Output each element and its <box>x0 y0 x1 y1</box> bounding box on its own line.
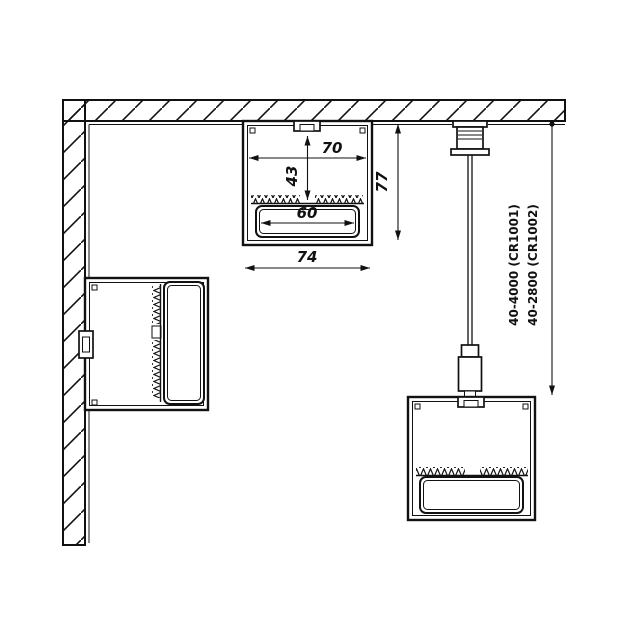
dim-label-overall-width: 74 <box>297 248 318 266</box>
ceiling-hatch <box>63 100 565 121</box>
led-heatsink-fins <box>416 467 465 475</box>
lens-retainer <box>152 326 161 338</box>
canopy-flange-bottom <box>451 149 489 155</box>
technical-drawing: 70 43 60 77 74 <box>0 0 630 630</box>
lens-diffuser <box>164 282 204 404</box>
screw-port <box>415 404 420 409</box>
mounting-clip-slot <box>300 125 314 132</box>
led-heatsink-fins <box>251 195 300 203</box>
wall-mounted-profile <box>79 278 208 410</box>
wall-hatch <box>63 100 85 545</box>
overall-width-dimension: 74 <box>245 248 370 268</box>
screw-port <box>360 128 365 133</box>
wall-mounting-clip-slot <box>83 337 90 352</box>
dim-label-depth: 43 <box>283 166 301 188</box>
canopy-flange-top <box>453 121 487 127</box>
overall-height-dimension: 77 <box>373 124 398 240</box>
dim-label-overall-height: 77 <box>373 171 391 192</box>
screw-port <box>92 400 97 405</box>
led-heatsink-fins <box>480 467 528 475</box>
dim-label-inner-width: 70 <box>322 139 343 157</box>
suspension-range-label-2: 40-2800 (CR1002) <box>526 204 540 326</box>
mounting-clip-slot <box>464 401 478 408</box>
led-heatsink-fins <box>315 195 363 203</box>
profile-mounting-diagram: 70 43 60 77 74 <box>0 0 630 630</box>
led-heatsink-fins <box>152 340 160 398</box>
screw-port <box>250 128 255 133</box>
suspension-range-label-1: 40-4000 (CR1001) <box>507 204 521 326</box>
screw-port <box>92 285 97 290</box>
led-heatsink-fins <box>152 286 160 324</box>
ceiling-mounted-profile: 70 43 60 <box>243 121 372 245</box>
screw-port <box>523 404 528 409</box>
suspension-length-dimension: 40-4000 (CR1001) 40-2800 (CR1002) <box>507 121 555 395</box>
lens-diffuser <box>420 477 523 513</box>
cable-gripper-body <box>459 357 482 391</box>
dim-label-lens-width: 60 <box>297 204 318 222</box>
ceiling-canopy <box>457 127 483 149</box>
cable-gripper-top <box>462 345 479 357</box>
